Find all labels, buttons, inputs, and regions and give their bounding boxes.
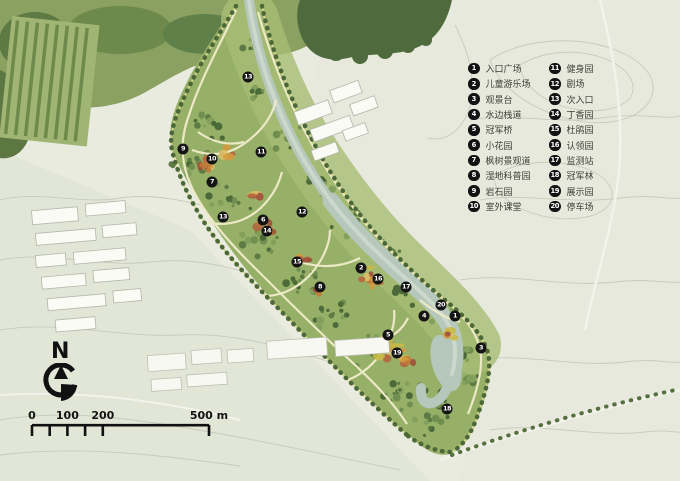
legend-number-badge: 1 xyxy=(468,63,480,75)
legend-item: 12剧场 xyxy=(549,76,594,91)
legend-item: 15杜鹃园 xyxy=(549,122,594,137)
legend-number-badge: 9 xyxy=(468,185,480,197)
legend-item-label: 停车场 xyxy=(567,200,594,213)
legend-item-label: 冠军林 xyxy=(567,169,594,182)
scale-label: 500 m xyxy=(190,409,228,422)
legend-number-badge: 20 xyxy=(549,201,561,213)
scale-label: 0 xyxy=(28,409,36,422)
legend-item: 20停车场 xyxy=(549,199,594,214)
legend-number-badge: 3 xyxy=(468,93,480,105)
legend-item: 17监测站 xyxy=(549,153,594,168)
legend-number-badge: 19 xyxy=(549,185,561,197)
compass-icon xyxy=(42,363,82,405)
legend-number-badge: 11 xyxy=(549,63,561,75)
legend-item-label: 水边栈道 xyxy=(486,108,522,121)
legend-item-label: 湿地科普园 xyxy=(486,169,531,182)
legend-number-badge: 8 xyxy=(468,170,480,182)
legend-item-label: 枫树景观道 xyxy=(486,154,531,167)
legend-item-label: 认领园 xyxy=(567,139,594,152)
legend-item: 2儿童游乐场 xyxy=(468,76,531,91)
legend-number-badge: 5 xyxy=(468,124,480,136)
legend-item-label: 入口广场 xyxy=(486,62,522,75)
legend-item-label: 小花园 xyxy=(486,139,513,152)
legend-number-badge: 7 xyxy=(468,155,480,167)
scale-label: 200 xyxy=(91,409,114,422)
legend-item-label: 剧场 xyxy=(567,77,585,90)
legend-item-label: 监测站 xyxy=(567,154,594,167)
legend-item: 5冠军桥 xyxy=(468,122,531,137)
legend-item-label: 岩石园 xyxy=(486,185,513,198)
legend-item: 13次入口 xyxy=(549,92,594,107)
legend-item: 6小花园 xyxy=(468,137,531,152)
legend-item-label: 杜鹃园 xyxy=(567,123,594,136)
legend-number-badge: 12 xyxy=(549,78,561,90)
legend-number-badge: 18 xyxy=(549,170,561,182)
legend-item: 14丁香园 xyxy=(549,107,594,122)
legend-number-badge: 6 xyxy=(468,139,480,151)
legend-number-badge: 10 xyxy=(468,201,480,213)
legend-number-badge: 17 xyxy=(549,155,561,167)
legend-item-label: 儿童游乐场 xyxy=(486,77,531,90)
legend-number-badge: 4 xyxy=(468,109,480,121)
legend-item: 18冠军林 xyxy=(549,168,594,183)
legend-number-badge: 16 xyxy=(549,139,561,151)
scale-labels: 0100200500 m xyxy=(26,409,236,423)
legend-item: 1入口广场 xyxy=(468,61,531,76)
legend-column-1: 1入口广场2儿童游乐场3观景台4水边栈道5冠军桥6小花园7枫树景观道8湿地科普园… xyxy=(468,61,531,214)
legend-item: 16认领园 xyxy=(549,137,594,152)
legend-item: 3观景台 xyxy=(468,92,531,107)
legend-item: 4水边栈道 xyxy=(468,107,531,122)
legend-item-label: 观景台 xyxy=(486,93,513,106)
scale-label: 100 xyxy=(56,409,79,422)
scale-ruler xyxy=(26,423,236,441)
legend-item-label: 次入口 xyxy=(567,93,594,106)
legend-item-label: 健身园 xyxy=(567,62,594,75)
legend-item: 7枫树景观道 xyxy=(468,153,531,168)
park-master-plan: 139101171213614152168172041531918 1入口广场2… xyxy=(0,0,680,481)
scale-bar: 0100200500 m xyxy=(26,409,236,455)
legend-item-label: 展示园 xyxy=(567,185,594,198)
legend-item: 11健身园 xyxy=(549,61,594,76)
legend-number-badge: 13 xyxy=(549,93,561,105)
legend-item-label: 室外课堂 xyxy=(486,200,522,213)
legend-item-label: 冠军桥 xyxy=(486,123,513,136)
legend-number-badge: 14 xyxy=(549,109,561,121)
orchard-rows xyxy=(0,16,100,147)
north-arrow: N xyxy=(42,341,86,405)
legend-number-badge: 2 xyxy=(468,78,480,90)
legend-item: 19展示园 xyxy=(549,183,594,198)
legend-item-label: 丁香园 xyxy=(567,108,594,121)
legend-item: 8湿地科普园 xyxy=(468,168,531,183)
legend-column-2: 11健身园12剧场13次入口14丁香园15杜鹃园16认领园17监测站18冠军林1… xyxy=(549,61,594,214)
legend-item: 9岩石园 xyxy=(468,183,531,198)
north-label: N xyxy=(51,341,86,363)
legend-item: 10室外课堂 xyxy=(468,199,531,214)
legend-number-badge: 15 xyxy=(549,124,561,136)
